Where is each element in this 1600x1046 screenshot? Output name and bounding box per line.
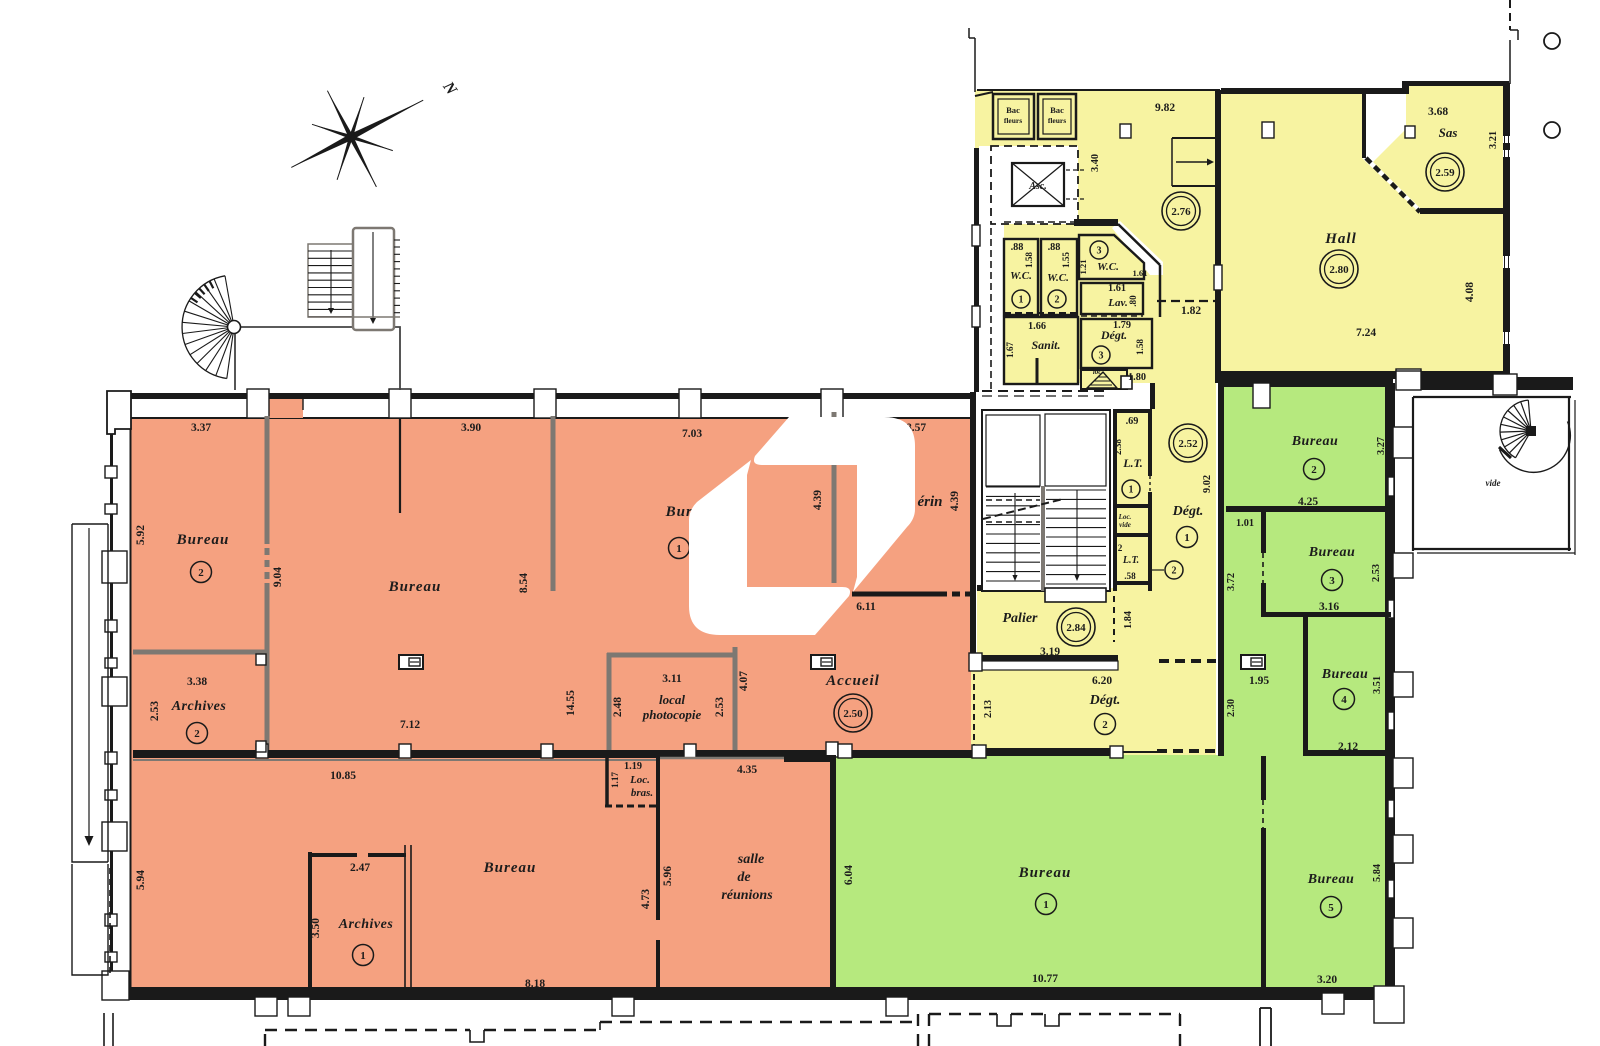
svg-text:2: 2	[198, 567, 204, 579]
svg-text:5: 5	[1328, 902, 1334, 914]
svg-text:Archives: Archives	[171, 699, 227, 714]
svg-text:2.53: 2.53	[149, 701, 161, 721]
svg-text:2.52: 2.52	[1178, 438, 1198, 450]
svg-text:2.12: 2.12	[1338, 741, 1358, 753]
svg-text:2.76: 2.76	[1171, 206, 1191, 218]
svg-text:érin: érin	[917, 494, 942, 510]
svg-text:7.12: 7.12	[400, 719, 420, 731]
svg-text:3.37: 3.37	[191, 422, 211, 434]
svg-text:1.17: 1.17	[610, 772, 620, 788]
svg-text:Loc.: Loc.	[629, 774, 650, 786]
svg-text:Bureau: Bureau	[1307, 872, 1355, 887]
svg-text:1: 1	[676, 543, 682, 555]
svg-text:Dégt.: Dégt.	[1172, 504, 1204, 519]
svg-text:6.20: 6.20	[1092, 675, 1112, 687]
svg-text:3.38: 3.38	[187, 676, 207, 688]
svg-text:Bureau: Bureau	[1321, 667, 1369, 682]
svg-text:4.35: 4.35	[737, 764, 757, 776]
svg-text:1.58: 1.58	[1135, 339, 1145, 355]
svg-text:3: 3	[1099, 351, 1104, 362]
svg-text:4.25: 4.25	[1298, 496, 1318, 508]
svg-text:.80: .80	[1128, 295, 1138, 307]
svg-text:W.C.: W.C.	[1010, 270, 1032, 282]
svg-text:Bac: Bac	[1006, 105, 1020, 115]
svg-text:3.72: 3.72	[1226, 573, 1237, 591]
svg-text:5.96: 5.96	[662, 866, 674, 886]
svg-text:3.20: 3.20	[1317, 974, 1337, 986]
svg-text:7.03: 7.03	[682, 428, 702, 440]
svg-text:1.55: 1.55	[1061, 252, 1071, 268]
svg-text:2.53: 2.53	[1371, 564, 1382, 582]
svg-text:W.C.: W.C.	[1047, 272, 1069, 284]
svg-text:4.73: 4.73	[640, 889, 652, 909]
svg-text:L.T.: L.T.	[1122, 555, 1139, 566]
svg-text:2: 2	[1311, 464, 1317, 476]
svg-text:1.82: 1.82	[1181, 305, 1201, 317]
svg-text:local: local	[659, 692, 685, 707]
svg-text:Sanit.: Sanit.	[1031, 338, 1060, 352]
svg-text:Hall: Hall	[1324, 231, 1357, 247]
svg-text:2.84: 2.84	[1066, 622, 1086, 634]
svg-text:Bureau: Bureau	[1291, 434, 1339, 449]
svg-text:réunions: réunions	[721, 888, 773, 903]
svg-text:Bureau: Bureau	[388, 579, 442, 595]
svg-text:2: 2	[194, 728, 200, 740]
svg-text:Dégt.: Dégt.	[1089, 693, 1121, 708]
svg-text:3.90: 3.90	[461, 422, 481, 434]
svg-text:7.24: 7.24	[1356, 327, 1376, 339]
svg-text:4.39: 4.39	[949, 491, 961, 511]
svg-text:6.11: 6.11	[856, 601, 876, 613]
svg-text:2.80: 2.80	[1329, 264, 1349, 276]
svg-text:3.11: 3.11	[662, 673, 682, 685]
svg-text:3.27: 3.27	[1376, 437, 1387, 455]
svg-text:5.92: 5.92	[135, 525, 147, 545]
svg-text:9.04: 9.04	[272, 567, 284, 587]
svg-text:8.18: 8.18	[525, 978, 545, 990]
svg-text:3.51: 3.51	[1372, 676, 1383, 694]
svg-text:3.16: 3.16	[1319, 601, 1339, 613]
svg-text:fleurs: fleurs	[1004, 116, 1022, 125]
svg-text:Dégt.: Dégt.	[1100, 328, 1127, 342]
svg-text:1.84: 1.84	[1123, 611, 1134, 629]
svg-text:2.59: 2.59	[1435, 167, 1455, 179]
svg-text:3: 3	[1329, 575, 1335, 587]
svg-text:1: 1	[1043, 899, 1049, 911]
svg-text:Bureau: Bureau	[1308, 545, 1356, 560]
svg-text:1.66: 1.66	[1028, 321, 1046, 332]
svg-text:4: 4	[1341, 694, 1347, 706]
svg-text:5.94: 5.94	[135, 870, 147, 890]
svg-text:1.67: 1.67	[1005, 342, 1015, 358]
svg-text:2: 2	[1172, 566, 1177, 577]
svg-text:1: 1	[1019, 295, 1024, 306]
svg-text:14.55: 14.55	[565, 690, 577, 716]
svg-text:5.84: 5.84	[1372, 864, 1383, 882]
svg-text:2: 2	[1118, 543, 1123, 553]
svg-text:photocopie: photocopie	[642, 707, 702, 722]
svg-text:bras.: bras.	[631, 787, 653, 799]
svg-text:.58: .58	[1124, 571, 1136, 581]
svg-text:1.01: 1.01	[1236, 518, 1254, 529]
svg-text:1.21: 1.21	[1078, 259, 1088, 274]
svg-text:Sas: Sas	[1439, 125, 1458, 140]
svg-text:3.40: 3.40	[1090, 154, 1101, 172]
svg-text:1.61: 1.61	[1132, 268, 1147, 278]
svg-text:W.C.: W.C.	[1097, 261, 1119, 273]
svg-text:2: 2	[1102, 719, 1108, 731]
svg-text:1.80: 1.80	[1128, 372, 1146, 383]
svg-text:loc.: loc.	[1093, 368, 1104, 376]
svg-text:Archives: Archives	[338, 917, 394, 932]
svg-text:Bureau: Bureau	[176, 532, 230, 548]
svg-text:.88: .88	[1011, 242, 1024, 253]
svg-text:Lav.: Lav.	[1107, 297, 1127, 309]
svg-text:Bureau: Bureau	[1018, 865, 1072, 881]
svg-text:1: 1	[360, 950, 366, 962]
svg-text:3.68: 3.68	[1428, 106, 1448, 118]
svg-text:10.85: 10.85	[330, 770, 356, 782]
svg-text:vide: vide	[1486, 478, 1501, 488]
svg-text:2.38: 2.38	[1113, 439, 1123, 455]
svg-text:3.50: 3.50	[310, 918, 322, 938]
svg-text:salle: salle	[737, 852, 764, 867]
svg-text:3.21: 3.21	[1488, 131, 1499, 149]
svg-text:2.13: 2.13	[983, 700, 994, 718]
svg-text:vide: vide	[1119, 521, 1131, 529]
svg-text:4.39: 4.39	[812, 490, 824, 510]
svg-text:Accueil: Accueil	[825, 673, 880, 689]
svg-text:9.82: 9.82	[1155, 102, 1175, 114]
svg-text:Palier: Palier	[1003, 611, 1039, 626]
svg-text:Bureau: Bureau	[483, 860, 537, 876]
svg-text:.69: .69	[1126, 416, 1139, 427]
svg-text:de: de	[737, 870, 750, 885]
svg-text:2.53: 2.53	[714, 697, 726, 717]
svg-text:L.T.: L.T.	[1122, 456, 1143, 470]
svg-text:2.47: 2.47	[350, 862, 370, 874]
svg-text:fleurs: fleurs	[1048, 116, 1066, 125]
svg-text:3: 3	[1097, 246, 1102, 257]
svg-text:2.50: 2.50	[843, 708, 863, 720]
svg-text:.88: .88	[1048, 242, 1061, 253]
svg-text:1: 1	[1184, 532, 1190, 544]
svg-text:2.48: 2.48	[612, 697, 624, 717]
svg-text:6.04: 6.04	[843, 865, 855, 885]
svg-text:10.77: 10.77	[1032, 973, 1058, 985]
svg-text:Asc.: Asc.	[1028, 181, 1047, 192]
svg-text:1.58: 1.58	[1024, 252, 1034, 268]
svg-text:1: 1	[1129, 485, 1134, 496]
svg-text:4.07: 4.07	[738, 671, 750, 691]
svg-text:9.02: 9.02	[1202, 475, 1213, 493]
svg-text:2: 2	[1055, 295, 1060, 306]
svg-text:8.54: 8.54	[518, 573, 530, 593]
svg-text:Loc.: Loc.	[1118, 513, 1132, 521]
svg-text:4.08: 4.08	[1464, 282, 1476, 302]
svg-text:3.19: 3.19	[1040, 646, 1060, 658]
svg-text:Bac: Bac	[1050, 105, 1064, 115]
svg-text:2.30: 2.30	[1226, 699, 1237, 717]
svg-text:1.61: 1.61	[1108, 283, 1126, 294]
svg-text:1.19: 1.19	[624, 761, 642, 772]
svg-text:1.95: 1.95	[1249, 675, 1269, 687]
